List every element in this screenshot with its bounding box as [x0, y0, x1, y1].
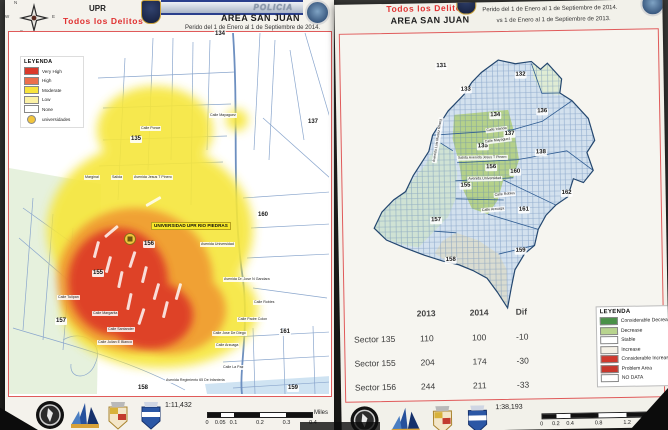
legend-swatch — [601, 374, 619, 382]
sector-label: 133 — [460, 87, 472, 94]
right-legend: LEYENDA Considerable Decrease Decrease S… — [596, 305, 668, 387]
street-label: Salida — [111, 175, 123, 180]
street-label: Avenida Universidad — [467, 176, 502, 181]
legend-swatch — [24, 67, 39, 75]
legend-item: Increase — [600, 345, 668, 354]
city-coat-of-arms-logo — [105, 399, 131, 430]
table-header: Dif — [516, 307, 528, 317]
sector-label: 160 — [257, 212, 269, 219]
street-label: Salida Avenida Jesus T Pinero — [457, 155, 508, 160]
sector-label: 134 — [489, 112, 501, 119]
sector-label: 136 — [536, 108, 548, 115]
sector-label: 159 — [515, 248, 527, 255]
legend-item: Considerable Increase — [600, 354, 668, 363]
photo-of-two-crime-maps: N W E S UPR Todos los Delitos POLICIA AR… — [0, 0, 668, 430]
scale-bar — [207, 412, 313, 418]
legend-item: Decrease — [600, 326, 668, 335]
sector-label: 155 — [92, 270, 104, 277]
legend-swatch — [600, 345, 618, 353]
street-label: Calle Margarita — [92, 311, 118, 316]
sector-label: 132 — [514, 72, 526, 79]
sector-label: 155 — [459, 183, 471, 190]
sector-label: 135 — [130, 136, 142, 143]
legend-item: universidades — [24, 115, 80, 124]
scale-ratio: 1:11,432 — [165, 402, 192, 409]
legend-title: LEYENDA — [600, 308, 668, 315]
sector-label: 135 — [477, 143, 489, 150]
table-value: 100 — [472, 332, 486, 342]
street-label: Avenida Universidad — [200, 242, 235, 247]
university-marker-icon — [123, 232, 137, 246]
table-row-label: Sector 155 — [354, 358, 395, 369]
legend-item: High — [24, 77, 80, 85]
street-label: Calle Jose De Diego — [212, 331, 247, 336]
legend-item: Moderate — [24, 86, 80, 94]
maritime-sails-logo — [69, 399, 101, 430]
street-label: Calle Arzuaga — [215, 343, 239, 348]
table-value: -30 — [516, 356, 528, 366]
legend-swatch — [600, 336, 618, 344]
sector-label: 161 — [279, 329, 291, 336]
legend-swatch — [600, 317, 618, 325]
legend-item: Very High — [24, 67, 80, 75]
photo-seam-shadow — [300, 422, 380, 430]
left-map-page: N W E S UPR Todos los Delitos POLICIA AR… — [5, 0, 334, 430]
sector-label: 161 — [518, 207, 530, 214]
sector-label: 131 — [435, 63, 447, 70]
street-label: Calle La Paz — [222, 365, 244, 370]
scale-ratio: 1:38,193 — [495, 404, 522, 411]
sector-label: 156 — [143, 241, 155, 248]
table-value: 110 — [420, 333, 434, 343]
table-row-label: Sector 135 — [354, 334, 395, 345]
legend-swatch — [600, 326, 618, 334]
street-label: Calle Robles — [253, 300, 275, 305]
scale-unit: Miles — [314, 410, 328, 416]
table-value: -33 — [517, 380, 529, 390]
sector-label: 159 — [287, 385, 299, 392]
legend-title: LEYENDA — [24, 59, 80, 65]
sector-label: 137 — [307, 119, 319, 126]
street-label: Calle Julian E Blanco — [97, 340, 133, 345]
legend-item: Stable — [600, 335, 668, 344]
street-label: Calle Ponce — [140, 126, 161, 131]
legend-swatch — [600, 355, 618, 363]
san-juan-crest-logo — [139, 399, 163, 430]
legend-swatch — [24, 105, 39, 113]
san-juan-crest-logo — [465, 403, 490, 430]
street-label: Calle Santander — [107, 327, 135, 332]
legend-item: Problem Area — [601, 364, 668, 373]
table-value: 204 — [420, 357, 434, 367]
sector-label: 157 — [55, 318, 67, 325]
legend-item: None — [24, 105, 80, 113]
table-value: 211 — [473, 380, 487, 390]
sector-label: 134 — [214, 31, 226, 38]
sector-label: 157 — [430, 217, 442, 224]
sector-label: 158 — [137, 385, 149, 392]
sector-label: 156 — [485, 164, 497, 171]
legend-swatch — [24, 86, 39, 94]
right-map-page: Todos los Delitos AREA SAN JUAN Perido d… — [334, 0, 668, 430]
street-label: Marginal — [84, 175, 100, 180]
legend-item: NO DATA — [601, 373, 668, 382]
university-poi-label: UNIVERSIDAD UPR RIO PIEDRAS — [151, 222, 231, 230]
legend-swatch — [601, 364, 619, 372]
city-coat-of-arms-logo — [429, 404, 456, 430]
table-value: 174 — [472, 356, 486, 366]
street-label: Avenida Dr. Jose N Gandara — [223, 277, 271, 282]
legend-swatch — [24, 77, 39, 85]
sector-label: 158 — [445, 257, 457, 264]
sector-label: 138 — [535, 149, 547, 156]
police-area-seal-logo — [35, 399, 65, 430]
street-label: Avenida Regimiento 65 De Infanteria — [165, 378, 226, 383]
university-marker-icon — [27, 115, 36, 124]
table-header: 2013 — [417, 308, 436, 318]
maritime-sails-logo — [389, 404, 422, 430]
legend-swatch — [24, 96, 39, 104]
legend-item: Low — [24, 96, 80, 104]
street-label: Calle Tulipan — [57, 295, 80, 300]
street-label: Calle Padre Colon — [237, 317, 268, 322]
legend-item: Considerable Decrease — [600, 316, 668, 325]
scale-ticks: 0 0.05 0.1 0.2 0.3 0.4 — [207, 420, 313, 428]
table-row-label: Sector 156 — [355, 382, 396, 393]
left-legend: LEYENDA Very High High Moderate Low None… — [20, 56, 84, 128]
street-label: Calle Mayaguez — [209, 113, 237, 118]
sector-label: 162 — [561, 190, 573, 197]
table-value: 244 — [421, 381, 435, 391]
table-value: -10 — [516, 332, 528, 342]
street-label: Avenida Jesus T Pinero — [133, 175, 173, 180]
table-header: 2014 — [470, 307, 489, 317]
sector-label: 160 — [509, 169, 521, 176]
